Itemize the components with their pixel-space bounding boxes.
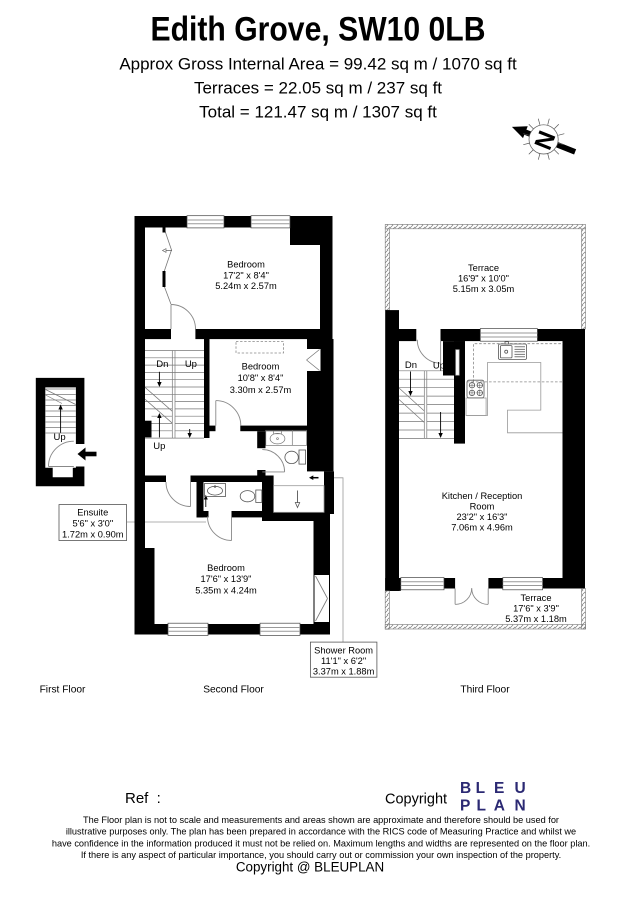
svg-text:Up: Up (433, 361, 445, 372)
svg-text:L: L (477, 798, 486, 815)
svg-text:Bedroom: Bedroom (227, 260, 265, 270)
svg-text:16'9" x 10'0": 16'9" x 10'0" (458, 274, 509, 284)
svg-text:Second Floor: Second Floor (203, 685, 264, 696)
svg-text:Shower Room: Shower Room (314, 646, 373, 656)
svg-text:Terraces = 22.05 sq m / 237 sq: Terraces = 22.05 sq m / 237 sq ft (194, 79, 442, 98)
svg-text:Room: Room (470, 502, 495, 512)
svg-text:5.15m x 3.05m: 5.15m x 3.05m (453, 284, 515, 294)
svg-text:5.37m x 1.18m: 5.37m x 1.18m (505, 614, 567, 624)
svg-text:10'8" x 8'4": 10'8" x 8'4" (238, 373, 284, 383)
svg-text:P: P (460, 798, 470, 815)
svg-text:1.72m x 0.90m: 1.72m x 0.90m (62, 530, 124, 540)
svg-text:have confidence in the informa: have confidence in the information produ… (52, 838, 590, 848)
svg-text:5.35m x 4.24m: 5.35m x 4.24m (195, 586, 257, 596)
svg-text:Up: Up (185, 359, 197, 370)
svg-text:17'6" x 13'9": 17'6" x 13'9" (201, 574, 252, 584)
svg-text:B: B (460, 780, 471, 797)
svg-text:Third Floor: Third Floor (460, 685, 510, 696)
svg-text:3.30m x 2.57m: 3.30m x 2.57m (230, 385, 292, 395)
svg-text:Bedroom: Bedroom (242, 361, 280, 371)
svg-text:Bedroom: Bedroom (207, 563, 245, 573)
svg-text:Ref :: Ref : (125, 790, 161, 807)
svg-text:Kitchen / Reception: Kitchen / Reception (442, 491, 523, 501)
svg-text:23'2" x 16'3": 23'2" x 16'3" (457, 512, 508, 522)
svg-text:Copyright: Copyright (385, 792, 447, 808)
svg-text:Total = 121.47 sq m / 1307 sq: Total = 121.47 sq m / 1307 sq ft (199, 103, 437, 122)
svg-text:11'1" x 6'2": 11'1" x 6'2" (321, 656, 366, 666)
svg-text:7.06m x 4.96m: 7.06m x 4.96m (451, 523, 513, 533)
svg-text:illustrative purposes only. Th: illustrative purposes only. The plan has… (66, 827, 576, 837)
svg-text:Dn: Dn (405, 360, 417, 371)
svg-text:Up: Up (153, 441, 165, 452)
svg-text:Terrace: Terrace (468, 263, 499, 273)
svg-text:Copyright @ BLEUPLAN: Copyright @ BLEUPLAN (236, 860, 384, 875)
svg-text:First Floor: First Floor (40, 685, 86, 696)
svg-text:5'6" x 3'0": 5'6" x 3'0" (72, 519, 113, 529)
svg-text:E: E (494, 780, 504, 797)
svg-text:L: L (476, 780, 485, 797)
svg-text:U: U (515, 780, 526, 797)
svg-text:A: A (494, 798, 505, 815)
svg-text:Dn: Dn (156, 359, 168, 370)
svg-text:17'6" x 3'9": 17'6" x 3'9" (513, 604, 559, 614)
svg-text:3.37m x 1.88m: 3.37m x 1.88m (313, 667, 375, 677)
svg-text:17'2" x 8'4": 17'2" x 8'4" (223, 270, 269, 280)
svg-text:5.24m x 2.57m: 5.24m x 2.57m (215, 281, 277, 291)
svg-text:Up: Up (54, 432, 66, 443)
svg-text:Approx Gross Internal Area = 9: Approx Gross Internal Area = 99.42 sq m … (119, 55, 517, 74)
svg-text:Edith Grove, SW10 0LB: Edith Grove, SW10 0LB (151, 10, 486, 48)
svg-text:Terrace: Terrace (521, 593, 552, 603)
svg-text:N: N (515, 798, 526, 815)
svg-text:Ensuite: Ensuite (77, 508, 108, 518)
svg-text:The Floor plan is not to scale: The Floor plan is not to scale and measu… (83, 815, 559, 825)
